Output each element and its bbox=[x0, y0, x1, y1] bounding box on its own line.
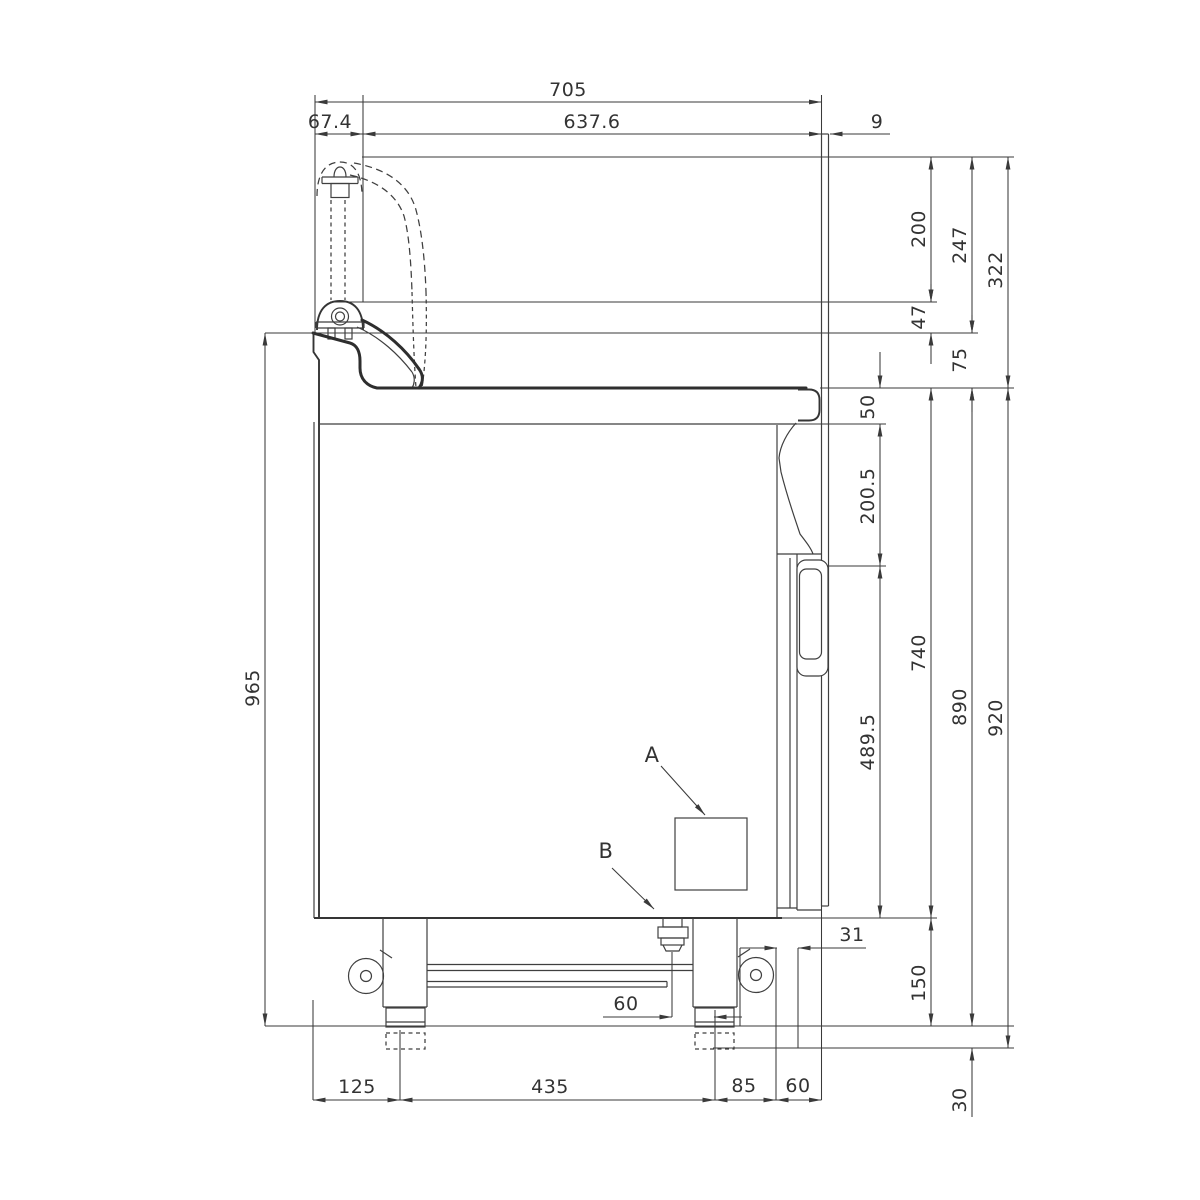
dim-47: 47 bbox=[908, 304, 930, 329]
dim-920: 920 bbox=[985, 699, 1007, 737]
raised-handle-grip bbox=[322, 167, 358, 198]
rear-caster bbox=[738, 949, 774, 993]
dimension-labels: 705 67.4 637.6 9 200 247 322 47 75 50 20… bbox=[242, 79, 1007, 1113]
dim-85: 85 bbox=[731, 1075, 756, 1097]
raised-lid-inner bbox=[350, 175, 412, 292]
front-leg bbox=[383, 918, 427, 1027]
dim-60: 60 bbox=[785, 1075, 810, 1097]
dim-965: 965 bbox=[242, 669, 264, 707]
lid-arm-outer bbox=[362, 320, 419, 369]
dim-60-foot: 60 bbox=[613, 993, 638, 1015]
worktop-end-cap bbox=[798, 390, 820, 421]
raised-lid-outer bbox=[354, 163, 426, 292]
dim-150: 150 bbox=[908, 964, 930, 1002]
front-caster bbox=[349, 950, 393, 994]
callout-b: B bbox=[599, 839, 614, 863]
dim-740: 740 bbox=[908, 634, 930, 672]
dim-247: 247 bbox=[949, 226, 971, 264]
technical-drawing-page: 705 67.4 637.6 9 200 247 322 47 75 50 20… bbox=[0, 0, 1200, 1200]
dim-30: 30 bbox=[949, 1087, 971, 1112]
front-foot-extended bbox=[386, 1033, 425, 1049]
rear-panel bbox=[822, 134, 829, 906]
dim-top-body: 637.6 bbox=[564, 111, 621, 133]
machine-body bbox=[313, 134, 829, 1027]
component-a-box bbox=[675, 818, 747, 890]
dim-top-left-offset: 67.4 bbox=[308, 111, 352, 133]
dim-50: 50 bbox=[857, 394, 879, 419]
leader-b bbox=[612, 868, 654, 909]
component-b-gland bbox=[658, 918, 688, 951]
dim-31: 31 bbox=[839, 924, 864, 946]
hidden-lines bbox=[317, 162, 734, 1049]
appliance-side-elevation: 705 67.4 637.6 9 200 247 322 47 75 50 20… bbox=[0, 0, 1200, 1200]
dim-75: 75 bbox=[949, 347, 971, 372]
extension-lines bbox=[265, 95, 1014, 1100]
dim-200-5: 200.5 bbox=[857, 468, 879, 525]
leader-a bbox=[661, 766, 705, 815]
dim-top-panel: 9 bbox=[871, 111, 884, 133]
dim-890: 890 bbox=[949, 688, 971, 726]
side-profile bbox=[779, 423, 813, 554]
pan-rim bbox=[313, 333, 806, 388]
dim-489-5: 489.5 bbox=[857, 714, 879, 771]
callout-labels: A B bbox=[599, 743, 660, 863]
cross-rail bbox=[427, 965, 693, 988]
dim-435: 435 bbox=[531, 1076, 569, 1098]
dim-125: 125 bbox=[338, 1076, 376, 1098]
dim-322: 322 bbox=[985, 251, 1007, 289]
callout-a: A bbox=[645, 743, 660, 767]
dim-200: 200 bbox=[908, 210, 930, 248]
dim-top-overall: 705 bbox=[549, 79, 587, 101]
lid-front-edge bbox=[419, 369, 422, 388]
